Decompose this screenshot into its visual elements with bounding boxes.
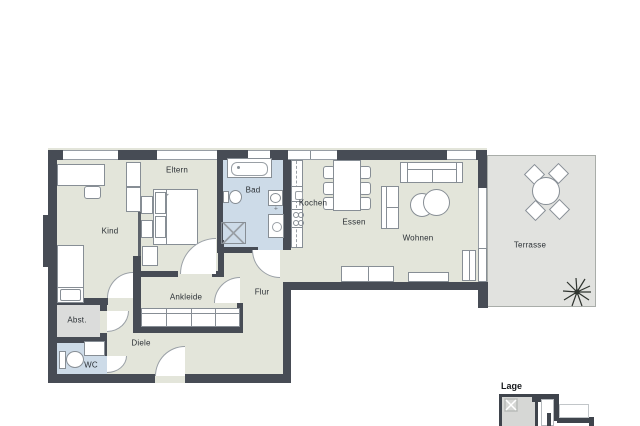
lage-window-mark bbox=[504, 398, 518, 412]
toilet-icon bbox=[229, 190, 242, 204]
window-icon bbox=[63, 150, 118, 160]
wall bbox=[478, 282, 488, 308]
radiator-mark: + bbox=[274, 206, 278, 213]
room-label-ankleide: Ankleide bbox=[170, 293, 202, 302]
chair-icon bbox=[84, 186, 101, 199]
lage-neighbor-unit bbox=[559, 404, 589, 418]
room-label-essen: Essen bbox=[342, 218, 365, 227]
wall bbox=[118, 150, 157, 160]
room-label-eltern: Eltern bbox=[166, 166, 188, 175]
sideboard-icon bbox=[408, 272, 449, 282]
dining-table-icon bbox=[333, 160, 361, 211]
lage-wall bbox=[547, 413, 551, 426]
wall bbox=[141, 271, 178, 277]
wall bbox=[283, 160, 291, 250]
shower-icon bbox=[221, 222, 246, 244]
wall bbox=[100, 298, 107, 311]
terrace-door-glass bbox=[478, 188, 487, 248]
nightstand-icon bbox=[141, 196, 153, 214]
wall bbox=[133, 327, 243, 333]
pillow-icon bbox=[155, 216, 166, 238]
room-label-wc: WC bbox=[84, 361, 98, 370]
coffee-table-icon bbox=[423, 189, 450, 216]
pillow-icon bbox=[155, 192, 166, 214]
window-icon bbox=[447, 150, 476, 160]
window-icon bbox=[157, 150, 217, 160]
stove-icon bbox=[291, 209, 303, 228]
dresser-icon bbox=[142, 246, 158, 266]
washbasin-icon bbox=[84, 341, 105, 356]
wall bbox=[270, 150, 288, 160]
room-label-diele: Diele bbox=[131, 339, 150, 348]
wall bbox=[48, 374, 155, 383]
room-label-wohnen: Wohnen bbox=[403, 234, 434, 243]
room-label-kochen: Kochen bbox=[299, 199, 327, 208]
toilet-icon bbox=[66, 351, 84, 368]
toilet-icon bbox=[59, 351, 66, 369]
pillow-icon bbox=[60, 289, 81, 301]
room-label-kind: Kind bbox=[102, 227, 119, 236]
wall bbox=[283, 290, 291, 383]
wall bbox=[48, 150, 57, 383]
bathtub-icon bbox=[227, 158, 272, 178]
window-mullion bbox=[310, 151, 311, 159]
window-icon bbox=[288, 150, 337, 160]
room-label-bad: Bad bbox=[246, 186, 261, 195]
sofa-icon bbox=[381, 186, 399, 229]
lage-title: Lage bbox=[501, 381, 522, 391]
wardrobe-icon bbox=[126, 187, 141, 212]
nightstand-icon bbox=[141, 220, 153, 238]
room-label-abst: Abst. bbox=[67, 316, 86, 325]
lage-wall bbox=[589, 421, 594, 426]
wardrobe-icon bbox=[141, 308, 240, 327]
radiator-icon bbox=[462, 250, 476, 281]
room-label-flur: Flur bbox=[255, 288, 270, 297]
sideboard-icon bbox=[341, 266, 394, 282]
wardrobe-icon bbox=[126, 162, 141, 187]
washing-machine-icon bbox=[268, 214, 284, 238]
wall bbox=[337, 150, 447, 160]
floor-plan: + bbox=[0, 0, 640, 426]
upper-cabinet-line bbox=[296, 161, 298, 247]
washbasin-icon bbox=[270, 193, 281, 203]
desk-icon bbox=[57, 164, 105, 186]
wall bbox=[283, 282, 487, 290]
wall bbox=[478, 150, 487, 188]
room-label-terrasse: Terrasse bbox=[514, 241, 546, 250]
sofa-icon bbox=[400, 162, 463, 183]
wall bbox=[185, 374, 291, 383]
window-icon bbox=[478, 248, 487, 282]
plant-icon bbox=[560, 276, 594, 308]
wall bbox=[133, 256, 141, 333]
terrace-table-icon bbox=[532, 177, 560, 205]
wall-pilaster bbox=[43, 215, 48, 267]
